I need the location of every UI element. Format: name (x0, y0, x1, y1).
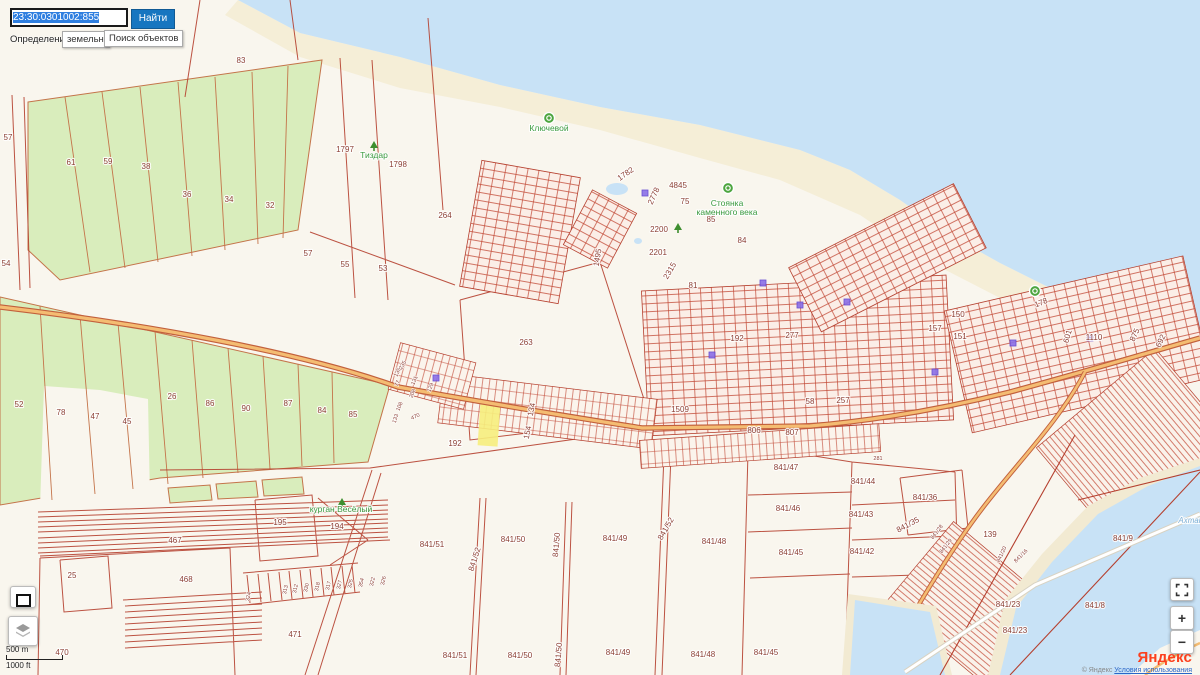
map-label: 84 (318, 406, 327, 415)
map-label: 78 (57, 408, 66, 417)
map-label: 45 (123, 417, 132, 426)
map-label: 841/23 (996, 600, 1021, 609)
layers-button[interactable] (8, 616, 38, 646)
map-label: 841/42 (850, 547, 875, 556)
object-marker[interactable] (433, 375, 439, 381)
map-label: 59 (104, 157, 113, 166)
zoom-in-button[interactable]: + (1170, 606, 1194, 630)
map-label: 54 (2, 259, 11, 268)
search-value: 23:30:0301002:855 (13, 12, 99, 23)
map-label: 151 (953, 332, 967, 341)
map-label: 52 (15, 400, 24, 409)
map-label: 36 (183, 190, 192, 199)
object-marker[interactable] (760, 280, 766, 286)
map-label: 75 (681, 197, 690, 206)
map-label: 1509 (671, 405, 689, 414)
map-label: 841/47 (774, 463, 799, 472)
map-label: 841/43 (849, 510, 874, 519)
map-label: 4845 (669, 181, 687, 190)
search-input[interactable]: 23:30:0301002:855 (10, 8, 128, 27)
map-label: 468 (179, 575, 193, 584)
map-label: 150 (951, 310, 965, 319)
map-label: 38 (142, 162, 151, 171)
map-canvas[interactable]: 8317971798264263149555535754615938363432… (0, 0, 1200, 675)
map-label: 87 (284, 399, 293, 408)
map-label: 85 (349, 410, 358, 419)
map-label: 257 (836, 396, 850, 405)
map-label: 841/50 (501, 535, 526, 544)
fullscreen-icon (1175, 583, 1189, 597)
map-label: 841/48 (702, 537, 727, 546)
map-label: 1797 (336, 145, 354, 154)
map-label: курган Весёлый (310, 504, 373, 514)
map-label: 841/46 (776, 504, 801, 513)
map-label: 53 (379, 264, 388, 273)
measure-tool-button[interactable] (10, 586, 36, 608)
map-label: 55 (341, 260, 350, 269)
scale-bar-line (6, 655, 63, 660)
map-label: 841/44 (851, 477, 876, 486)
object-marker[interactable] (797, 302, 803, 308)
fullscreen-button[interactable] (1170, 578, 1194, 601)
highlighted-parcel[interactable] (478, 403, 501, 446)
map-label: 841/51 (420, 540, 445, 549)
map-label: 34 (225, 195, 234, 204)
yandex-logo[interactable]: Яндекс (1137, 649, 1192, 666)
map-label: 25 (68, 571, 77, 580)
map-label: 83 (237, 56, 246, 65)
map-label: 277 (785, 331, 799, 340)
map-label: 157 (928, 324, 942, 333)
map-label: Ключевой (529, 123, 568, 133)
map-label: 192 (730, 334, 744, 343)
map-label: 841/45 (779, 548, 804, 557)
small-pond (606, 183, 628, 195)
cadastral-map[interactable]: 8317971798264263149555535754615938363432… (0, 0, 1200, 675)
object-kind-chip[interactable]: земельны (62, 31, 110, 48)
small-pond (634, 238, 642, 244)
map-label: 841/8 (1085, 601, 1106, 610)
map-label: 471 (288, 630, 302, 639)
map-label: 841/45 (754, 648, 779, 657)
object-marker[interactable] (932, 369, 938, 375)
object-marker[interactable] (642, 190, 648, 196)
map-label: 1798 (389, 160, 407, 169)
map-label: 194 (330, 522, 344, 531)
map-label: 57 (304, 249, 313, 258)
copyright-text: © Яндекс (1082, 667, 1113, 674)
map-label: 841/36 (913, 493, 938, 502)
map-label: 192 (448, 439, 462, 448)
map-label: 264 (438, 211, 452, 220)
map-label: 841/48 (691, 650, 716, 659)
map-label: 1110 (1086, 333, 1103, 342)
map-label: 806 (747, 426, 761, 435)
map-label: 90 (242, 404, 251, 413)
map-label: 841/51 (443, 651, 468, 660)
map-attribution: © Яндекс Условия использования (1082, 667, 1192, 674)
map-label: 26 (168, 392, 177, 401)
map-label: Ахтани (1177, 516, 1200, 525)
map-label: 84 (738, 236, 747, 245)
map-label: 841/49 (606, 648, 631, 657)
layers-icon (14, 622, 32, 640)
map-label: 467 (168, 536, 182, 545)
scale-metric: 500 m (6, 645, 63, 654)
object-marker[interactable] (709, 352, 715, 358)
map-label: 2201 (649, 248, 667, 257)
map-label: 2200 (650, 225, 668, 234)
map-label: 841/49 (603, 534, 628, 543)
map-label: 58 (806, 397, 815, 406)
scale-imperial: 1000 ft (6, 661, 63, 670)
tool-icon (16, 594, 31, 607)
find-button[interactable]: Найти (131, 9, 175, 29)
scale-bar: 500 m 1000 ft (6, 645, 63, 670)
map-label: 47 (91, 412, 100, 421)
place-poi-icon[interactable] (1030, 286, 1041, 297)
map-label: 139 (983, 530, 997, 539)
terms-link[interactable]: Условия использования (1114, 667, 1192, 674)
map-label: 32 (266, 201, 275, 210)
object-search-chip[interactable]: Поиск объектов (104, 30, 183, 47)
map-label: 263 (519, 338, 533, 347)
map-label: каменного века (696, 207, 757, 217)
map-label: 807 (785, 428, 799, 437)
map-label: Тиздар (360, 150, 388, 160)
map-label: 841/23 (1003, 626, 1028, 635)
place-poi-icon[interactable] (723, 183, 734, 194)
object-marker[interactable] (1010, 340, 1016, 346)
object-marker[interactable] (844, 299, 850, 305)
map-label: 281 (873, 456, 882, 462)
map-label: 61 (67, 158, 76, 167)
map-label: 57 (4, 133, 13, 142)
map-label: 81 (689, 281, 698, 290)
map-label: 841/9 (1113, 534, 1134, 543)
place-poi-icon[interactable] (544, 113, 555, 124)
map-label: 86 (206, 399, 215, 408)
map-label: 841/50 (508, 651, 533, 660)
map-label: 195 (273, 518, 287, 527)
